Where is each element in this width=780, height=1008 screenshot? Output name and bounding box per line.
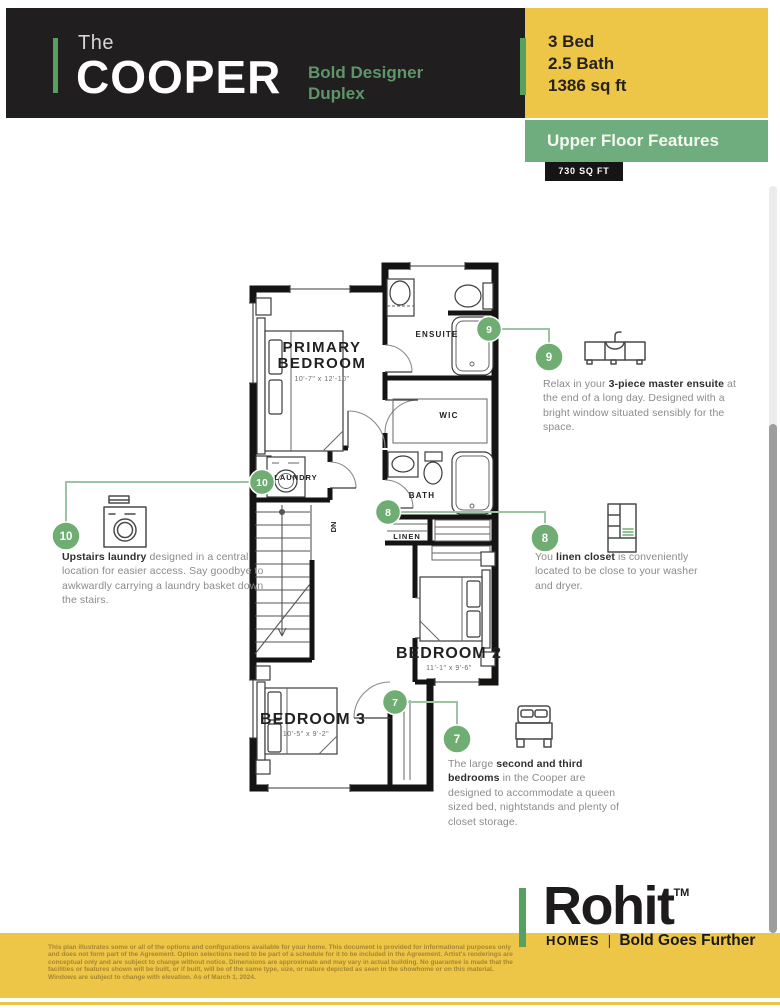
plan-marker-9-number: 9 — [486, 324, 492, 336]
room-label-wic: WIC — [439, 411, 458, 420]
callout-marker-8-number: 8 — [542, 533, 549, 545]
brand-tagline: Bold Goes Further — [619, 932, 755, 950]
footer-accent-bar — [519, 888, 526, 947]
annotation-laundry-text: Upstairs laundry designed in a central l… — [62, 550, 270, 608]
room-label-bedroom2: BEDROOM 2 — [396, 645, 502, 662]
washing-machine-icon — [100, 494, 150, 555]
callout-marker-7-number: 7 — [454, 734, 460, 746]
room-dims-bedroom3: 10'-5" x 9'-2" — [283, 731, 329, 738]
vanity-icon — [584, 329, 646, 374]
room-dims-bedroom2: 11'-1" x 9'-6" — [426, 665, 472, 672]
room-label-primary-line1: PRIMARY — [282, 339, 361, 356]
wic-shelving — [393, 399, 487, 443]
stairs-dn-label: DN — [329, 522, 338, 533]
primary-bed — [256, 298, 343, 473]
bath-fixtures — [388, 452, 493, 514]
room-label-bedroom3: BEDROOM 3 — [260, 711, 366, 728]
callout-connector-9 — [501, 329, 549, 344]
brand-homes-label: HOMES — [546, 933, 600, 948]
plan-marker-8-number: 8 — [385, 507, 391, 519]
annotation-ensuite-bold: 3-piece master ensuite — [609, 378, 724, 390]
room-label-ensuite: ENSUITE — [415, 330, 458, 339]
annotation-ensuite-lead: Relax in your — [543, 378, 609, 390]
brand-name: Rohit — [543, 876, 673, 936]
callout-connector-10 — [66, 482, 250, 523]
room-dims-primary: 10'-7" x 12'-10" — [295, 376, 350, 383]
linen-shelves — [387, 524, 428, 531]
annotation-bedrooms-text: The large second and third bedrooms in t… — [448, 757, 630, 829]
page: { "header": { "pre_title": "The", "title… — [0, 0, 780, 1008]
annotation-linen-text: You linen closet is conveniently located… — [535, 550, 715, 593]
scrollbar-thumb[interactable] — [769, 424, 777, 933]
room-label-linen: LINEN — [393, 532, 421, 541]
annotation-ensuite-text: Relax in your 3-piece master ensuite at … — [543, 377, 741, 435]
disclaimer-text: This plan illustrates some or all of the… — [48, 944, 513, 981]
callout-marker-10-number: 10 — [60, 531, 73, 543]
room-label-laundry: LAUNDRY — [274, 473, 317, 482]
room-label-bath: BATH — [409, 491, 435, 500]
callout-marker-9-number: 9 — [546, 352, 552, 364]
brand-divider: | — [608, 932, 612, 948]
plan-marker-10-number: 10 — [256, 477, 268, 489]
bed-icon — [512, 704, 556, 755]
annotation-linen-bold: linen closet — [556, 551, 615, 563]
page-bottom-edge — [0, 1002, 780, 1005]
trademark-symbol: TM — [673, 887, 689, 899]
annotation-bedrooms-lead: The large — [448, 758, 496, 770]
bedroom3-closet-rod — [404, 700, 410, 780]
plan-marker-7-number: 7 — [392, 697, 398, 709]
brand-subline: HOMES | Bold Goes Further — [546, 932, 755, 950]
annotation-laundry-bold: Upstairs laundry — [62, 551, 146, 563]
annotation-linen-lead: You — [535, 551, 556, 563]
brand-logo: RohitTM — [543, 879, 689, 933]
room-label-primary-line2: BEDROOM — [278, 355, 367, 372]
